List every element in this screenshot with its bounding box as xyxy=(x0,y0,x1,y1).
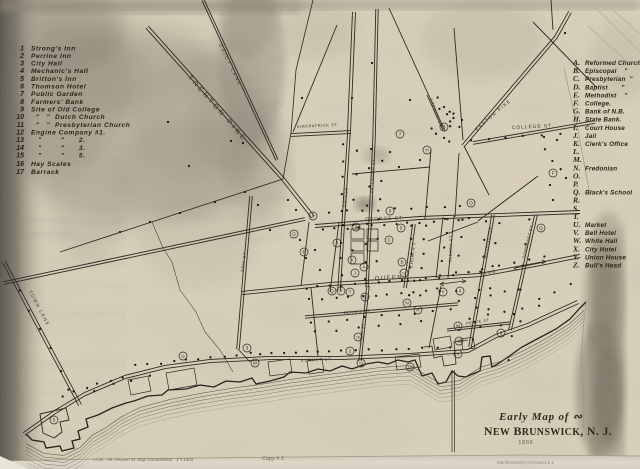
svg-text:1: 1 xyxy=(20,45,24,52)
svg-text:J: J xyxy=(336,241,338,246)
svg-text:Y: Y xyxy=(441,290,444,295)
svg-text:Early Map of ∾: Early Map of ∾ xyxy=(498,411,583,423)
svg-text:City Hotel: City Hotel xyxy=(585,246,616,253)
svg-text:8: 8 xyxy=(389,209,392,214)
svg-text:Episcopal ": Episcopal " xyxy=(585,68,628,75)
svg-text:14: 14 xyxy=(16,145,24,152)
svg-text:6: 6 xyxy=(20,84,24,91)
svg-text:Bank of N.B.: Bank of N.B. xyxy=(585,109,625,116)
svg-text:M: M xyxy=(253,361,257,366)
svg-text:7: 7 xyxy=(399,132,402,137)
svg-text:17: 17 xyxy=(16,169,25,176)
svg-text:G: G xyxy=(363,295,367,300)
svg-text:8: 8 xyxy=(20,99,24,106)
svg-text:X: X xyxy=(458,289,461,294)
svg-text:P: P xyxy=(339,289,342,294)
svg-text:City Hall: City Hall xyxy=(31,61,62,68)
svg-text:12: 12 xyxy=(16,129,24,136)
svg-text:3: 3 xyxy=(20,61,24,68)
svg-text:" " 2.: " " 2. xyxy=(31,137,85,144)
svg-text:Mechanic's Hall: Mechanic's Hall xyxy=(31,68,88,75)
svg-text:ALBANY ST.: ALBANY ST. xyxy=(448,234,454,263)
svg-text:Baptist ": Baptist " xyxy=(585,84,625,91)
svg-text:Methodist ": Methodist " xyxy=(585,92,628,99)
svg-text:State Bank.: State Bank. xyxy=(585,117,622,124)
svg-text:Perrine Inn: Perrine Inn xyxy=(31,53,72,60)
svg-text:1800: 1800 xyxy=(518,440,533,446)
svg-text:" " 3.: " " 3. xyxy=(31,145,85,152)
svg-text:Barrack: Barrack xyxy=(31,169,59,176)
svg-text:10: 10 xyxy=(16,114,24,121)
svg-text:B: B xyxy=(400,260,403,265)
svg-text:E: E xyxy=(302,250,305,255)
svg-text:6: 6 xyxy=(500,331,503,336)
svg-text:Court House: Court House xyxy=(585,125,625,132)
svg-text:Strong's Inn: Strong's Inn xyxy=(31,45,76,52)
svg-text:Presbyterian ": Presbyterian " xyxy=(585,76,633,83)
svg-text:Z.: Z. xyxy=(572,261,580,270)
svg-text:M9/383/N19(2(3)/A666/3 6 1: M9/383/N19(2(3)/A666/3 6 1 xyxy=(497,460,555,465)
svg-text:W: W xyxy=(457,339,462,344)
svg-text:G: G xyxy=(292,232,296,237)
svg-text:15: 15 xyxy=(16,152,24,159)
svg-text:9: 9 xyxy=(312,214,315,219)
svg-text:11: 11 xyxy=(181,355,185,359)
svg-text:" " Dutch Church: " " Dutch Church xyxy=(31,114,105,121)
svg-text:White Hall: White Hall xyxy=(585,238,617,245)
svg-text:Union House: Union House xyxy=(585,254,626,261)
svg-text:2: 2 xyxy=(349,349,352,354)
svg-text:Q: Q xyxy=(330,289,334,294)
svg-text:M: M xyxy=(456,324,460,329)
svg-text:5: 5 xyxy=(20,76,24,83)
svg-text:14: 14 xyxy=(408,366,412,370)
svg-text:• A.E. - M. Heaven M. Map Com: • A.E. - M. Heaven M. Map Commission - 1… xyxy=(93,457,194,462)
svg-text:Bull's Head: Bull's Head xyxy=(585,263,621,270)
svg-text:College.: College. xyxy=(585,101,611,108)
svg-text:N: N xyxy=(405,301,408,306)
svg-text:T: T xyxy=(349,290,352,295)
svg-text:5: 5 xyxy=(53,418,56,423)
svg-text:12: 12 xyxy=(359,362,363,366)
svg-text:Thomson Hotel: Thomson Hotel xyxy=(31,84,86,91)
svg-text:F: F xyxy=(552,171,555,176)
svg-text:Copy # 1: Copy # 1 xyxy=(262,456,284,462)
svg-text:5: 5 xyxy=(400,226,403,231)
svg-text:O: O xyxy=(469,201,473,206)
svg-text:" " 5.: " " 5. xyxy=(31,152,85,159)
svg-text:Engine Company #1.: Engine Company #1. xyxy=(31,129,106,136)
svg-text:Black's School: Black's School xyxy=(585,190,632,197)
svg-text:4: 4 xyxy=(355,225,358,230)
svg-text:Britton's Inn: Britton's Inn xyxy=(31,76,77,83)
svg-text:2: 2 xyxy=(19,53,24,60)
svg-text:Site of Old College: Site of Old College xyxy=(31,107,100,114)
svg-text:Farmers' Bank: Farmers' Bank xyxy=(31,99,84,106)
svg-text:H: H xyxy=(425,148,428,153)
svg-text:11: 11 xyxy=(17,122,24,129)
svg-text:16: 16 xyxy=(16,161,24,168)
svg-text:4: 4 xyxy=(19,68,24,75)
svg-text:13: 13 xyxy=(16,137,24,144)
svg-text:3: 3 xyxy=(246,346,249,351)
svg-text:" " Presbyterian Church: " " Presbyterian Church xyxy=(31,122,130,129)
svg-text:Reformed Church: Reformed Church xyxy=(585,60,640,67)
svg-text:Market: Market xyxy=(585,222,607,229)
svg-text:Fredonian: Fredonian xyxy=(585,165,617,172)
svg-text:Hay Scales: Hay Scales xyxy=(31,161,71,168)
svg-text:NEW BRUNSWICK, N. J.: NEW BRUNSWICK, N. J. xyxy=(484,424,612,438)
svg-text:Public Garden: Public Garden xyxy=(31,91,83,98)
svg-text:Q: Q xyxy=(539,226,543,231)
svg-text:9: 9 xyxy=(20,107,24,114)
svg-text:J: J xyxy=(354,271,356,276)
svg-text:Clerk's Office: Clerk's Office xyxy=(585,141,628,148)
svg-text:Jail: Jail xyxy=(585,133,596,140)
svg-text:Bell Hotel: Bell Hotel xyxy=(585,230,616,237)
